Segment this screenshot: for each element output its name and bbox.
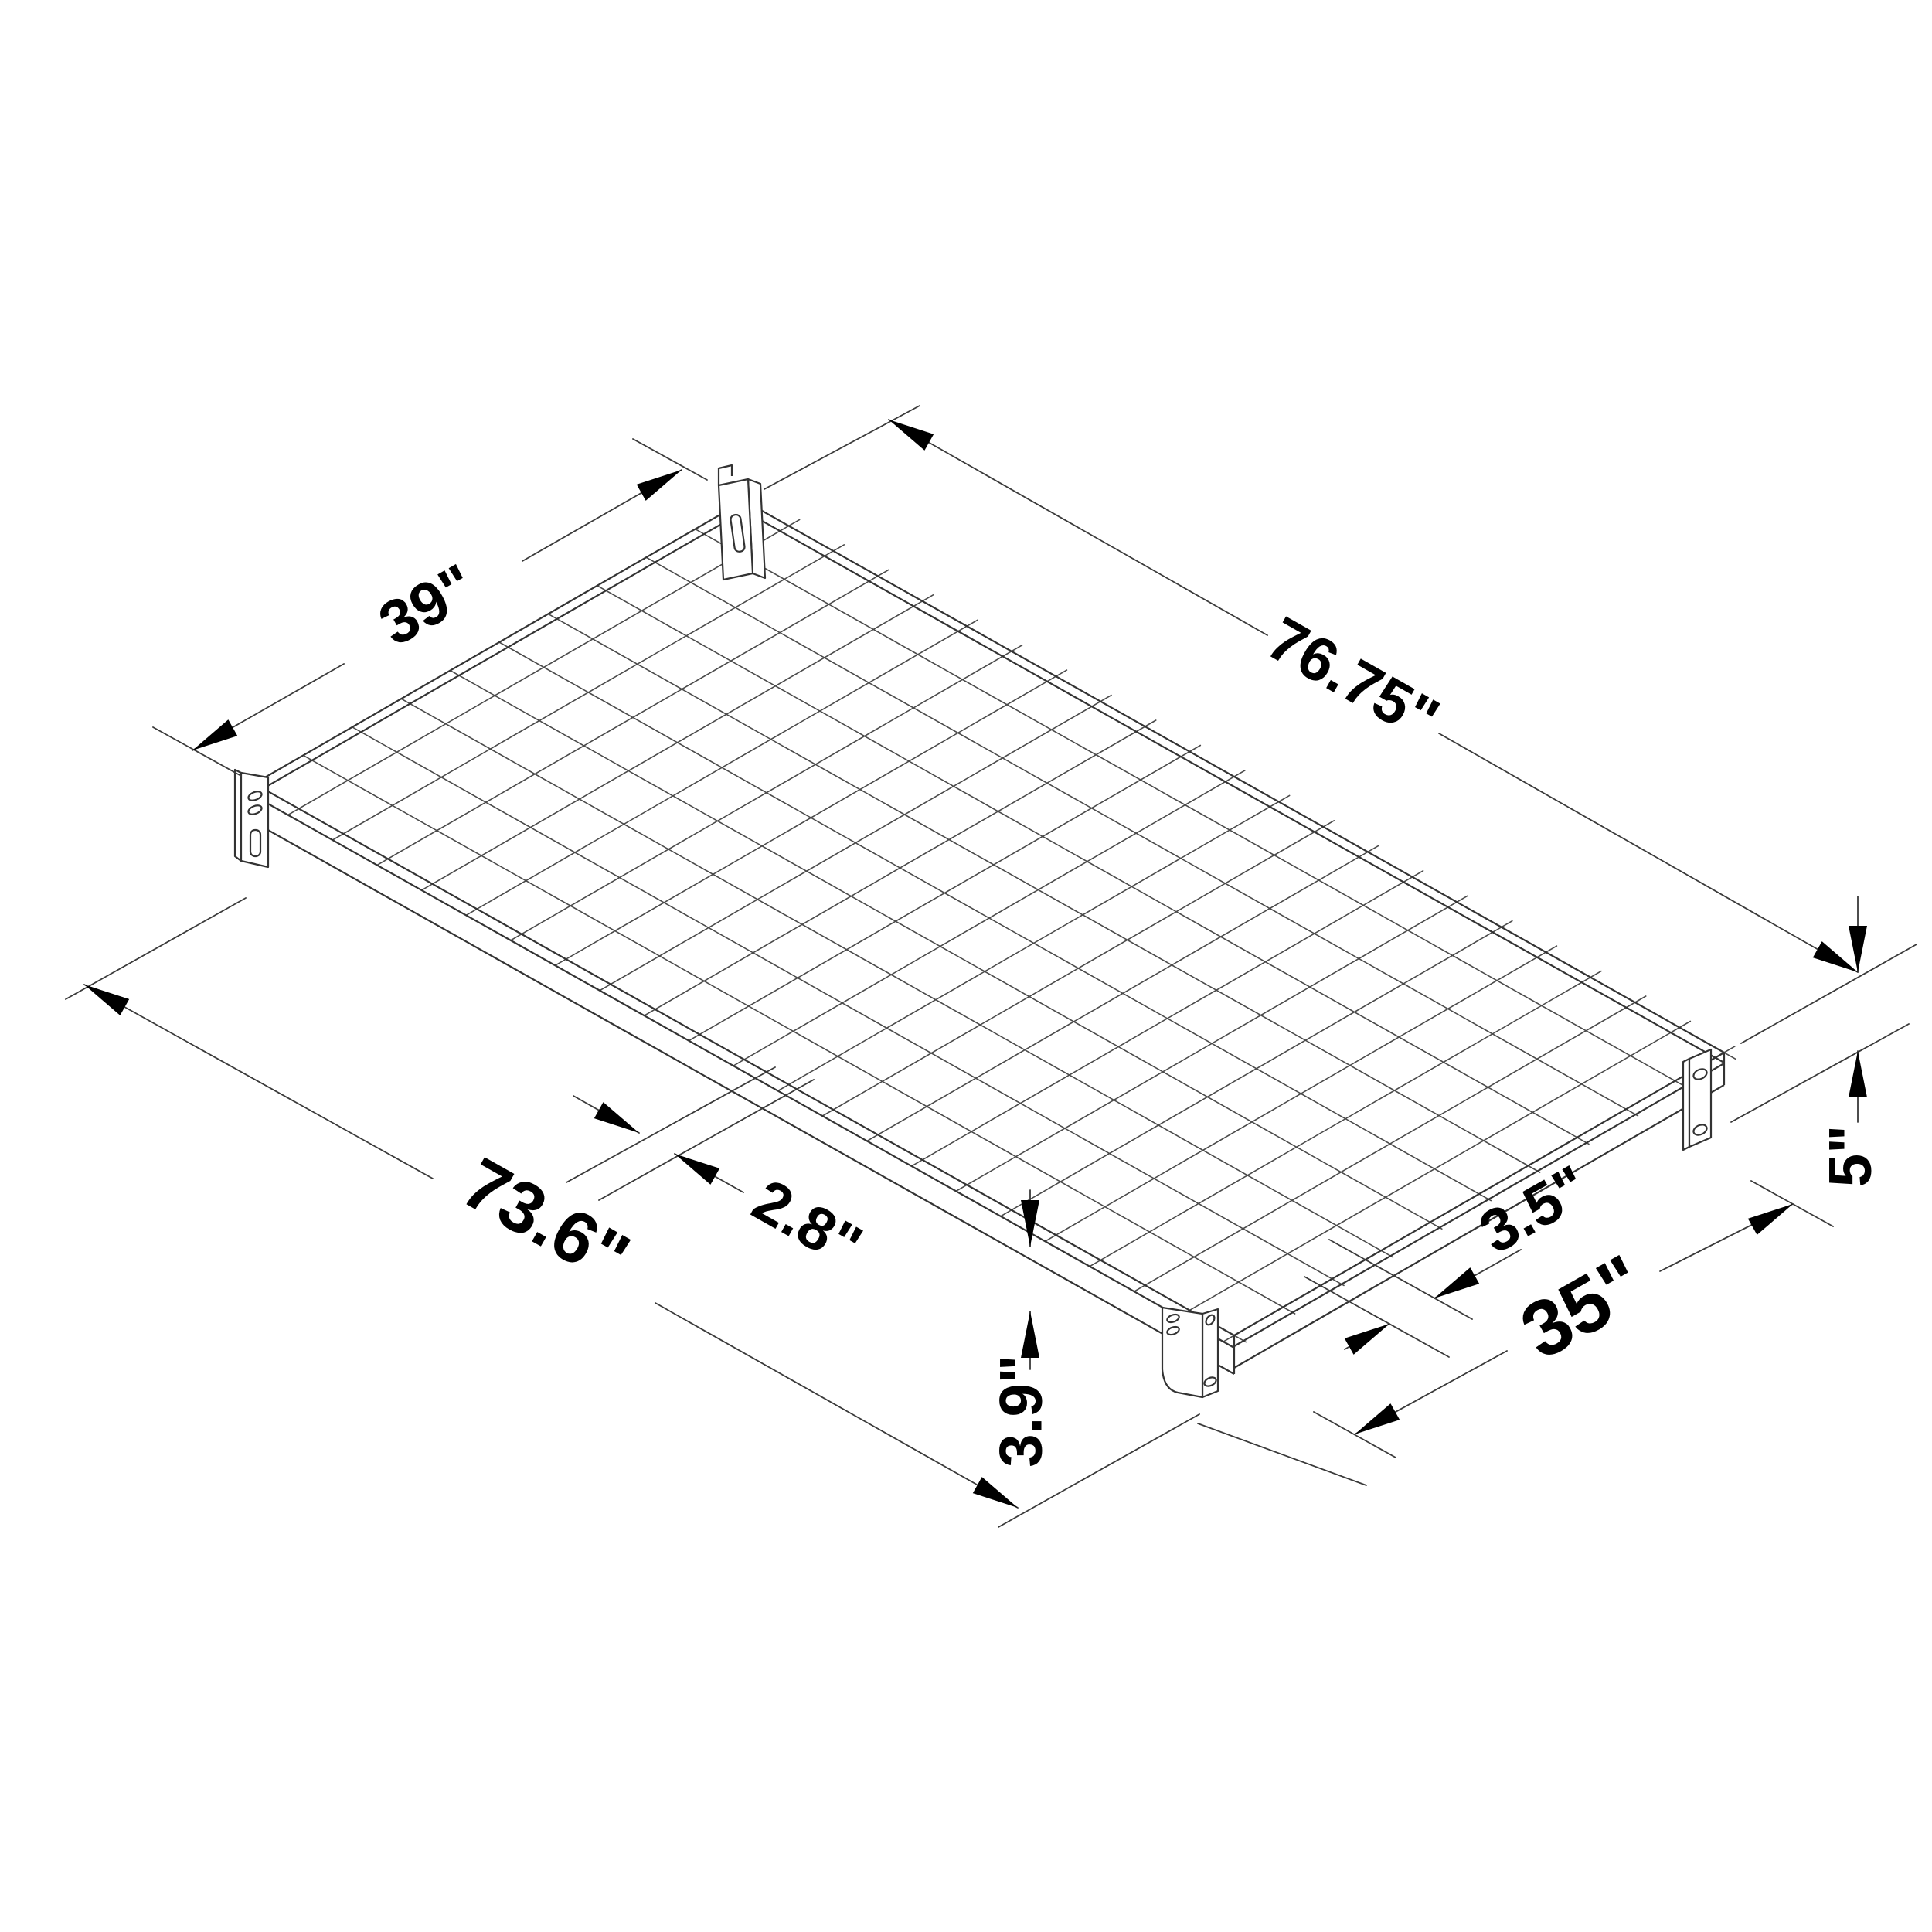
label-side-height: 5" (1816, 1125, 1884, 1187)
arrow-35half-left (1345, 1324, 1389, 1355)
right-bracket (1683, 1049, 1711, 1150)
mesh-wire (451, 671, 1442, 1230)
back-left-rail (254, 501, 744, 794)
arrow-35half-right (1434, 1267, 1479, 1298)
arrow-7675-right (1813, 941, 1858, 972)
arrow-35-left (1355, 1403, 1400, 1434)
arrow-28-upper (594, 1102, 639, 1133)
front-rail (254, 784, 1234, 1374)
left-bracket (235, 770, 268, 867)
shelf-dimension-drawing: 39" 76.75" 73.6" 2.8" 3.5" 35" 3.9" 5" (0, 0, 1932, 1932)
label-top-width: 39" (368, 550, 487, 658)
dim-5 (1731, 896, 1909, 1122)
arrow-35-right (1748, 1204, 1793, 1235)
top-bracket (719, 465, 765, 580)
label-inner-width: 35" (1507, 1238, 1659, 1376)
arrow-736-left (84, 985, 129, 1015)
arrow-39t-bottom (1021, 1311, 1039, 1358)
arrow-7675-left (889, 420, 934, 451)
arrow-736-right (973, 1477, 1018, 1508)
bottom-leg (1162, 1308, 1218, 1397)
arrow-28-lower (675, 1154, 719, 1185)
mesh-wire (499, 642, 1491, 1201)
label-top-length: 76.75" (1257, 604, 1451, 754)
label-leg-height: 3.9" (987, 1355, 1055, 1467)
label-front-length: 73.6" (450, 1142, 643, 1299)
arrow-39-right (637, 470, 682, 501)
arrow-5-bottom (1849, 1051, 1867, 1097)
diagram-canvas: 39" 76.75" 73.6" 2.8" 3.5" 35" 3.9" 5" (0, 0, 1932, 1932)
back-right-rail (744, 501, 1724, 1063)
label-rail-height: 2.8" (742, 1165, 873, 1280)
arrow-5-top (1849, 926, 1867, 972)
arrow-39-left (192, 719, 237, 750)
